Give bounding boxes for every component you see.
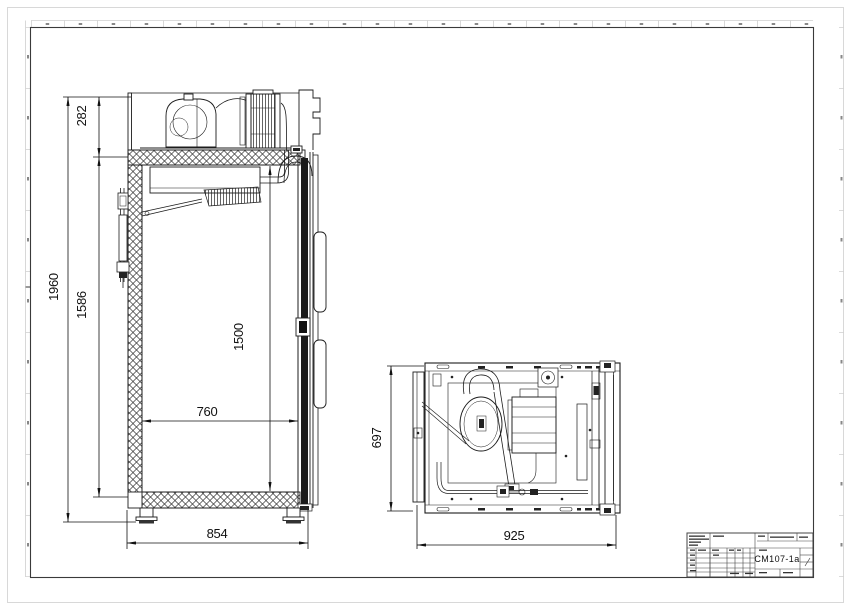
dim-overall-depth-label: 925 (504, 528, 525, 543)
dim-overall-width-label: 854 (207, 526, 228, 541)
insulation-left-wall (128, 165, 142, 492)
dim-depth-label: 697 (369, 428, 384, 449)
title-part-number: CM107-1a (754, 554, 799, 564)
door-handle-upper (314, 232, 326, 312)
drawing-sheet: 1960 282 1586 1500 760 854 (0, 0, 851, 610)
dim-body-height-label: 1586 (74, 291, 89, 319)
side-section-view (117, 90, 326, 524)
dim-door-opening-label: 1500 (231, 323, 246, 351)
door-latch (296, 318, 310, 336)
rear-panel (413, 372, 424, 502)
insulation-floor (142, 492, 300, 508)
condenser (240, 90, 287, 150)
top-view (413, 361, 620, 515)
dim-inner-width-label: 760 (197, 404, 218, 419)
fan-box (538, 368, 558, 387)
insulation-ceiling (128, 150, 300, 165)
dim-unit-height-label: 282 (74, 106, 89, 127)
door-handle-lower (314, 340, 326, 408)
dim-overall-height-label: 1960 (46, 273, 61, 301)
